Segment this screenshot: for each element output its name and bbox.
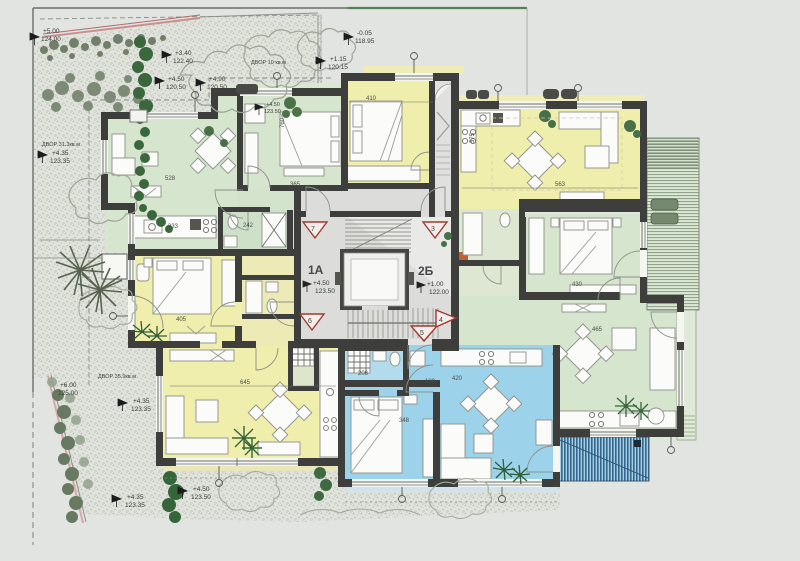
svg-text:1A: 1A [308, 263, 324, 277]
svg-text:123.35: 123.35 [125, 502, 145, 509]
svg-text:575: 575 [470, 132, 476, 143]
svg-text:+6.00: +6.00 [60, 382, 77, 389]
svg-text:123.50: 123.50 [191, 494, 211, 501]
svg-text:+5.00: +5.00 [43, 28, 60, 35]
svg-text:563: 563 [555, 182, 566, 188]
svg-text:ДВОР 10 кв.м: ДВОР 10 кв.м [251, 60, 286, 66]
svg-text:645: 645 [240, 380, 251, 386]
svg-text:120.50: 120.50 [207, 84, 227, 91]
svg-text:3: 3 [431, 226, 435, 233]
svg-text:130: 130 [425, 379, 436, 385]
svg-text:+4.35: +4.35 [127, 494, 144, 501]
svg-text:+4.50: +4.50 [168, 76, 185, 83]
svg-text:+4.50: +4.50 [313, 280, 330, 287]
svg-text:4: 4 [439, 317, 443, 324]
svg-text:430: 430 [572, 282, 583, 288]
svg-text:ДВОР 31.3кв.м: ДВОР 31.3кв.м [42, 142, 80, 148]
svg-text:122.40: 122.40 [173, 58, 193, 65]
svg-text:465: 465 [592, 327, 603, 333]
svg-text:405: 405 [176, 317, 187, 323]
svg-text:125.00: 125.00 [58, 390, 78, 397]
svg-text:-0.05: -0.05 [357, 30, 372, 37]
svg-text:+3.40: +3.40 [175, 50, 192, 57]
svg-text:6: 6 [308, 318, 312, 325]
svg-text:118.95: 118.95 [355, 38, 375, 45]
svg-text:7: 7 [311, 226, 315, 233]
svg-text:123.50: 123.50 [315, 288, 335, 295]
svg-text:124.00: 124.00 [41, 36, 61, 43]
svg-text:123.35: 123.35 [131, 406, 151, 413]
svg-text:333: 333 [168, 224, 179, 230]
svg-text:2Б: 2Б [418, 264, 434, 278]
svg-text:5: 5 [420, 330, 424, 337]
svg-text:760: 760 [280, 117, 286, 128]
svg-text:123.35: 123.35 [50, 158, 70, 165]
svg-text:120.15: 120.15 [328, 64, 348, 71]
svg-text:120.50: 120.50 [166, 84, 186, 91]
svg-text:365: 365 [290, 182, 301, 188]
svg-text:528: 528 [165, 176, 176, 182]
svg-text:+4.50: +4.50 [266, 102, 280, 108]
svg-text:+4.50: +4.50 [193, 486, 210, 493]
svg-text:+4.90: +4.90 [209, 76, 226, 83]
svg-text:122.00: 122.00 [429, 289, 449, 296]
svg-text:242: 242 [243, 223, 254, 229]
svg-text:206: 206 [358, 371, 369, 377]
svg-text:410: 410 [366, 96, 377, 102]
svg-text:ДВОР 35.9кв.м: ДВОР 35.9кв.м [98, 374, 136, 380]
svg-text:+1.00: +1.00 [427, 281, 444, 288]
svg-text:+4.35: +4.35 [52, 150, 69, 157]
svg-text:123.50: 123.50 [264, 109, 281, 115]
svg-text:420: 420 [452, 376, 463, 382]
svg-text:348: 348 [399, 418, 410, 424]
svg-text:+1.15: +1.15 [330, 56, 347, 63]
svg-text:+4.35: +4.35 [133, 398, 150, 405]
